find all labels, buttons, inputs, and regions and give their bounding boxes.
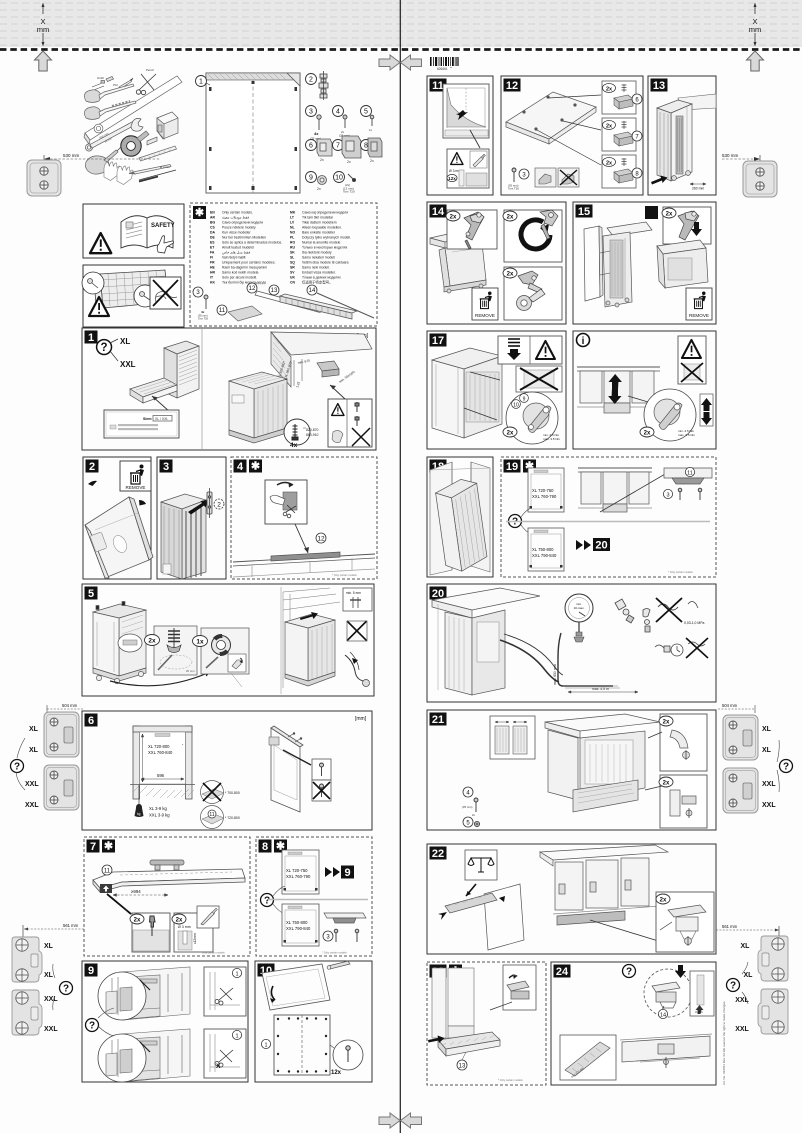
svg-text:Kun visse modeller: Kun visse modeller [222, 231, 252, 235]
svg-text:XL 750-800: XL 750-800 [286, 920, 308, 925]
svg-text:3: 3 [309, 109, 313, 116]
svg-text:4x: 4x [314, 131, 319, 136]
svg-text:XXL 790-840: XXL 790-840 [286, 926, 311, 931]
svg-text:626661: 626661 [437, 67, 448, 71]
svg-text:NO: NO [290, 231, 295, 235]
svg-text:1x: 1x [369, 128, 373, 132]
svg-text:11: 11 [209, 812, 214, 818]
svg-text:XXL: XXL [735, 1026, 749, 1033]
svg-text:860-910: 860-910 [306, 433, 319, 437]
svg-text:Тек белгілі бір модельдерде: Тек белгілі бір модельдерде [222, 281, 266, 285]
svg-text:XL: XL [762, 726, 772, 733]
svg-text:NL: NL [290, 226, 295, 230]
svg-text:2x: 2x [606, 87, 613, 93]
svg-text:SL: SL [290, 256, 294, 260]
svg-text:DA: DA [210, 231, 215, 235]
svg-text:kg: kg [137, 812, 141, 816]
svg-text:3: 3 [163, 461, 169, 473]
svg-text:max. 3.5 Nm: max. 3.5 Nm [543, 437, 561, 441]
svg-text:596: 596 [157, 773, 165, 778]
svg-text:Tikai dažiem modeļiem: Tikai dažiem modeļiem [302, 221, 337, 225]
svg-text:260 mm: 260 mm [692, 187, 704, 191]
svg-text:HE: HE [210, 266, 215, 270]
svg-text:Vain tietyt mallit: Vain tietyt mallit [222, 256, 246, 260]
svg-text:KK: KK [210, 281, 215, 285]
svg-text:Vetëm disa modele të caktuara: Vetëm disa modele të caktuara [302, 261, 349, 265]
svg-text:XXL 760-790: XXL 760-790 [286, 874, 311, 879]
svg-text:Bare enkelte modeller: Bare enkelte modeller [302, 231, 336, 235]
svg-text:12: 12 [317, 536, 325, 543]
svg-text:2: 2 [89, 461, 95, 473]
svg-text:Samo nekateri modeli: Samo nekateri modeli [302, 256, 335, 260]
svg-text:2x: 2x [134, 918, 141, 924]
svg-text:Sólo se aplica a determinados: Sólo se aplica a determinados modelos. [222, 241, 282, 245]
svg-text:max. 3.5 Nm: max. 3.5 Nm [678, 433, 696, 437]
svg-text:XL: XL [44, 972, 54, 979]
svg-text:[mm]: [mm] [355, 716, 367, 722]
svg-text:XXL: XXL [44, 996, 58, 1003]
svg-text:Only certain models.: Only certain models. [222, 211, 253, 215]
svg-text:12: 12 [506, 80, 518, 92]
svg-text:2x: 2x [507, 272, 514, 278]
svg-text:SR: SR [290, 266, 295, 270]
svg-text:561 mm: 561 mm [722, 924, 738, 929]
svg-text:6: 6 [309, 143, 313, 150]
svg-text:2: 2 [217, 502, 221, 509]
svg-text:2x: 2x [660, 898, 667, 904]
svg-text:EN: EN [210, 211, 215, 215]
svg-text:max. 650 mm: max. 650 mm [553, 664, 557, 685]
svg-text:mm: mm [749, 25, 762, 34]
svg-text:PL: PL [290, 236, 294, 240]
svg-text:1: 1 [199, 79, 203, 86]
svg-text:Pencil: Pencil [146, 68, 154, 72]
svg-text:SQ: SQ [290, 261, 295, 265]
svg-text:2x: 2x [450, 215, 457, 221]
svg-text:i: i [582, 336, 585, 347]
svg-text:**: ** [450, 66, 452, 70]
svg-text:DE: DE [210, 236, 215, 240]
svg-text:9: 9 [88, 965, 94, 977]
svg-text:Samo kod nekih modela: Samo kod nekih modela [222, 271, 258, 275]
svg-text:9: 9 [523, 397, 526, 403]
svg-text:5: 5 [88, 588, 94, 600]
svg-text:* 700-800: * 700-800 [225, 791, 240, 795]
svg-text:11: 11 [219, 308, 226, 314]
svg-text:4: 4 [237, 461, 244, 473]
svg-text:14: 14 [309, 288, 316, 294]
svg-text:XXL 790-840: XXL 790-840 [532, 553, 557, 558]
svg-text:XL: XL [741, 943, 751, 950]
svg-text:* Only certain models: * Only certain models [322, 951, 347, 955]
svg-text:Siem: Siem [143, 417, 152, 421]
svg-text:19: 19 [506, 461, 518, 473]
svg-text:820-870: 820-870 [306, 428, 319, 432]
svg-text:1: 1 [88, 332, 94, 344]
svg-text:12x: 12x [331, 1070, 342, 1076]
svg-text:BG: BG [210, 221, 215, 225]
svg-text:* Only certain models: * Only certain models [668, 570, 693, 574]
svg-text:Alleen bepaalde modellen.: Alleen bepaalde modellen. [302, 226, 342, 230]
svg-text:XL 3-9 kg: XL 3-9 kg [149, 806, 167, 811]
svg-text:Endast vissa modeller.: Endast vissa modeller. [302, 271, 336, 275]
svg-text:10: 10 [335, 175, 343, 182]
svg-text:min. 5 mm: min. 5 mm [346, 591, 361, 595]
svg-text:XXL 3-9 kg: XXL 3-9 kg [149, 813, 170, 818]
svg-text:13: 13 [653, 80, 665, 92]
svg-text:4x: 4x [290, 442, 298, 449]
svg-text:Ainult teatud mudelid: Ainult teatud mudelid [222, 246, 254, 250]
svg-text:XL: XL [120, 337, 130, 346]
svg-text:10-max.: 10-max. [574, 606, 585, 610]
svg-text:XL 750-800: XL 750-800 [532, 547, 554, 552]
svg-text:530 mm: 530 mm [722, 153, 739, 158]
svg-text:Само кај определени модели: Само кај определени модели [302, 211, 348, 215]
svg-text:REMOVE: REMOVE [126, 485, 146, 490]
svg-text:14: 14 [660, 1013, 666, 1019]
svg-text:* Only certain models: * Only certain models [498, 1078, 523, 1082]
svg-text:24: 24 [556, 966, 569, 978]
svg-text:Numai la anumite modele: Numai la anumite modele [302, 241, 341, 245]
svg-text:10: 10 [513, 403, 519, 409]
svg-text:RU: RU [290, 246, 295, 250]
svg-text:11: 11 [432, 80, 444, 92]
svg-text:2x: 2x [370, 159, 374, 163]
svg-text:فقط مدل های خاص: فقط مدل های خاص [222, 251, 251, 255]
svg-text:Samo neki modeli.: Samo neki modeli. [302, 266, 330, 270]
svg-text:12: 12 [249, 286, 256, 292]
svg-text:* Only certain models: * Only certain models [200, 951, 225, 955]
svg-text:3x/20: 3x/20 [97, 76, 104, 80]
svg-text:2x: 2x [663, 720, 670, 726]
svg-text:Tik tam tikri modeliai: Tik tam tikri modeliai [302, 216, 333, 220]
svg-text:XL 720-750: XL 720-750 [532, 488, 554, 493]
svg-text:Dotyczy tylko wybranych modeli: Dotyczy tylko wybranych modeli. [302, 236, 351, 240]
svg-text:FA: FA [210, 251, 215, 255]
svg-text:Тільки в деяких моделях: Тільки в деяких моделях [302, 276, 341, 280]
svg-text:Pz2: Pz2 [113, 83, 118, 87]
svg-text:XXL: XXL [44, 1026, 58, 1033]
svg-text:7: 7 [336, 143, 340, 150]
svg-text:561 mm: 561 mm [63, 923, 79, 928]
svg-text:2x: 2x [666, 212, 673, 218]
svg-text:SK: SK [290, 251, 295, 255]
svg-text:XXL 760-840: XXL 760-840 [148, 750, 173, 755]
svg-text:* Only certain models: * Only certain models [332, 573, 357, 577]
svg-text:XXL: XXL [120, 360, 136, 369]
svg-text:Ø 3 mm: Ø 3 mm [178, 925, 191, 929]
svg-text:4x: 4x [201, 310, 205, 314]
svg-text:XL: XL [29, 747, 39, 754]
svg-text:CS: CS [210, 226, 215, 230]
svg-text:2x: 2x [176, 918, 183, 924]
svg-text:X: X [216, 1063, 221, 1070]
svg-text:20: 20 [595, 540, 607, 552]
svg-text:XL 720-800: XL 720-800 [148, 744, 170, 749]
svg-text:Само определени модели: Само определени модели [222, 221, 263, 225]
svg-text:FI: FI [210, 256, 213, 260]
svg-text:XL: XL [44, 943, 54, 950]
svg-text:530 mm: 530 mm [63, 153, 80, 158]
svg-text:20 mm: 20 mm [186, 669, 195, 673]
svg-text:SV: SV [290, 271, 295, 275]
svg-text:HR: HR [210, 271, 215, 275]
svg-text:Nur bei bestimmten Modellen: Nur bei bestimmten Modellen [222, 236, 266, 240]
svg-text:REMOVE: REMOVE [689, 313, 709, 318]
svg-text:Rami ba-dagmim mesuyamim: Rami ba-dagmim mesuyamim [222, 266, 267, 270]
svg-text:AR: AR [210, 216, 215, 220]
svg-text:12x: 12x [448, 176, 456, 181]
svg-text:2x: 2x [507, 431, 514, 437]
svg-text:XL: XL [29, 726, 39, 733]
svg-text:504 mm: 504 mm [722, 703, 738, 708]
svg-text:1x: 1x [196, 639, 204, 646]
svg-text:mm: mm [37, 25, 50, 34]
svg-text:فقط موديلات معينة: فقط موديلات معينة [222, 216, 249, 220]
svg-text:4: 4 [336, 109, 340, 116]
svg-text:1: 1 [235, 972, 238, 978]
svg-text:XL: XL [762, 747, 772, 754]
svg-text:14: 14 [432, 206, 445, 218]
svg-text:504 mm: 504 mm [62, 703, 78, 708]
svg-text:2x: 2x [507, 215, 514, 221]
svg-text:9: 9 [344, 867, 350, 879]
svg-text:2x: 2x [148, 638, 156, 645]
svg-text:Torx T20: Torx T20 [198, 317, 209, 321]
svg-text:2: 2 [309, 77, 313, 84]
svg-text:XXL: XXL [762, 781, 776, 788]
svg-text:3 mm: 3 mm [695, 1010, 703, 1014]
svg-text:22: 22 [432, 848, 444, 860]
svg-text:Solo per alcuni modelli.: Solo per alcuni modelli. [222, 276, 257, 280]
svg-text:XXL: XXL [762, 802, 776, 809]
svg-text:8: 8 [364, 143, 368, 150]
svg-text:2x: 2x [644, 431, 651, 437]
svg-text:仅适用于特定型号。: 仅适用于特定型号。 [302, 280, 333, 285]
svg-text:Только в некоторых моделях: Только в некоторых моделях [302, 246, 348, 250]
svg-text:REMOVE: REMOVE [475, 313, 495, 318]
svg-text:2x: 2x [347, 160, 351, 164]
svg-text:MK: MK [290, 211, 296, 215]
svg-text:2x: 2x [320, 158, 324, 162]
svg-text:0,03-1,0 MPa: 0,03-1,0 MPa [684, 621, 704, 625]
svg-text:5: 5 [364, 109, 368, 116]
svg-text:≥994: ≥994 [131, 889, 141, 894]
svg-text:11: 11 [687, 471, 693, 477]
svg-text:Iba niektoré modely: Iba niektoré modely [302, 251, 332, 255]
svg-text:CN: CN [290, 281, 295, 285]
svg-text:XL / XXL: XL / XXL [155, 417, 168, 421]
svg-text:21: 21 [432, 714, 444, 726]
svg-text:9: 9 [309, 175, 313, 182]
svg-text:1: 1 [264, 1043, 267, 1049]
svg-text:* 720-800: * 720-800 [225, 816, 240, 820]
svg-text:≤12mm: ≤12mm [193, 933, 197, 944]
svg-text:11: 11 [104, 869, 111, 875]
svg-text:6: 6 [88, 715, 94, 727]
svg-text:7: 7 [90, 841, 96, 853]
svg-text:UK: UK [290, 276, 295, 280]
svg-text:(35 mm): (35 mm) [462, 805, 472, 809]
svg-text:ES: ES [210, 241, 215, 245]
svg-text:SAFETY: SAFETY [151, 223, 175, 229]
svg-text:17: 17 [432, 335, 444, 347]
svg-text:XXL: XXL [25, 781, 39, 788]
svg-text:max. 4.5 m: max. 4.5 m [592, 687, 609, 691]
svg-text:13: 13 [459, 1064, 466, 1070]
svg-text:Ø 3 mm: Ø 3 mm [160, 165, 171, 169]
svg-text:3: 3 [666, 493, 669, 499]
svg-text:Art. No. 626661 Rev. 03 We r: Art. No. 626661 Rev. 03 We reserve the r… [722, 1001, 726, 1085]
svg-text:8: 8 [262, 841, 268, 853]
svg-text:FR: FR [210, 261, 215, 265]
svg-text:13: 13 [271, 288, 278, 294]
svg-text:XXL: XXL [25, 802, 39, 809]
svg-text:Torx T20: Torx T20 [508, 187, 519, 191]
svg-text:Uniquement pour certains modèl: Uniquement pour certains modèles. [222, 261, 276, 265]
svg-text:15: 15 [578, 206, 590, 218]
svg-text:XL: XL [744, 972, 754, 979]
svg-text:Pouze některé modely: Pouze některé modely [222, 226, 256, 230]
svg-text:XL 720-750: XL 720-750 [286, 868, 308, 873]
svg-text:Torx T20: Torx T20 [343, 190, 355, 194]
svg-text:2x: 2x [663, 781, 670, 787]
svg-text:2x: 2x [317, 187, 321, 191]
svg-text:RO: RO [290, 241, 295, 245]
svg-text:XXL 760-790: XXL 760-790 [532, 494, 557, 499]
